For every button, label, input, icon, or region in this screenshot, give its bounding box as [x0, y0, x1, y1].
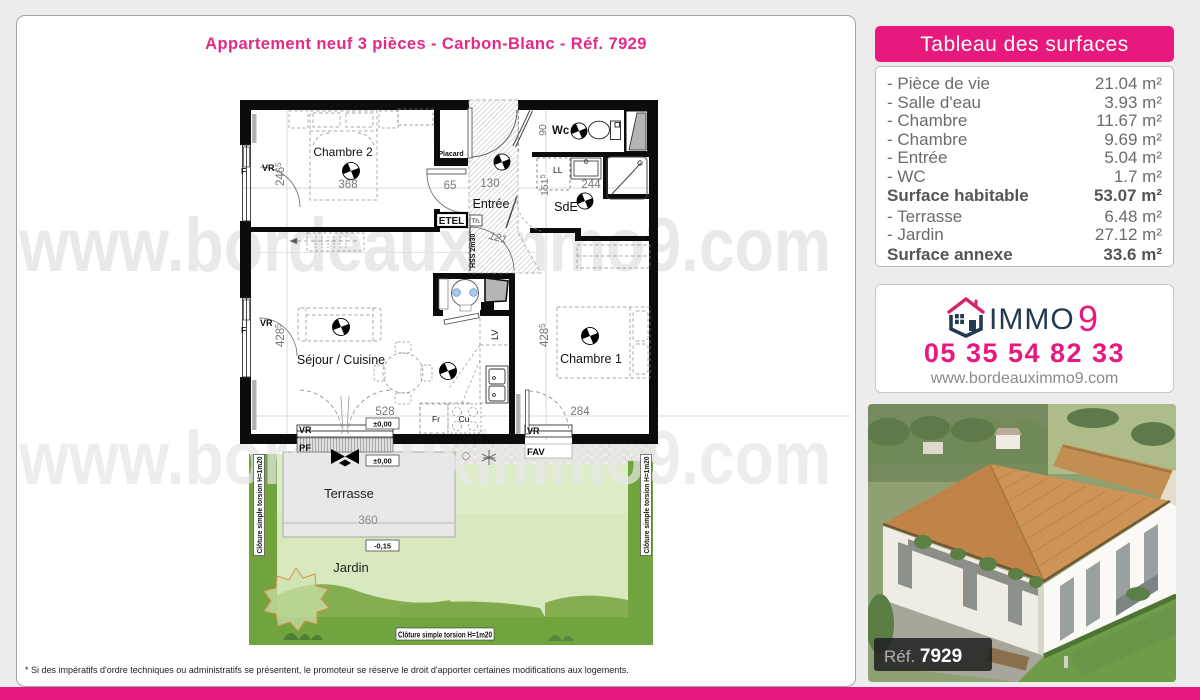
svg-text:F: F — [241, 325, 246, 335]
svg-text:368: 368 — [338, 179, 357, 191]
svg-text:Clôture simple torsion H=1m20: Clôture simple torsion H=1m20 — [255, 457, 264, 554]
svg-text:Clôture simple torsion H=1m20: Clôture simple torsion H=1m20 — [642, 457, 651, 554]
svg-text:65: 65 — [444, 180, 457, 192]
svg-text:VR: VR — [527, 426, 540, 436]
svg-text:±0,00: ±0,00 — [373, 457, 392, 466]
svg-text:VR: VR — [299, 425, 312, 435]
svg-text:90: 90 — [537, 124, 549, 136]
svg-text:-0,15: -0,15 — [374, 542, 391, 551]
svg-text:Chambre 2: Chambre 2 — [313, 145, 373, 159]
svg-text:IMMO: IMMO — [989, 303, 1075, 336]
svg-text:Th.: Th. — [471, 218, 481, 225]
svg-text:VR: VR — [260, 318, 273, 328]
svg-text:±0,00: ±0,00 — [373, 420, 392, 429]
svg-text:Clôture simple torsion H=1m20: Clôture simple torsion H=1m20 — [398, 631, 492, 640]
svg-text:ETEL: ETEL — [439, 216, 465, 227]
svg-text:Cu: Cu — [459, 414, 470, 424]
svg-text:244: 244 — [581, 179, 601, 191]
svg-text:LL: LL — [553, 165, 563, 175]
svg-text:HSS 2m30: HSS 2m30 — [470, 234, 477, 268]
svg-text:Fr: Fr — [432, 414, 440, 424]
svg-text:Wc: Wc — [552, 125, 570, 137]
svg-text:360: 360 — [358, 515, 377, 527]
svg-text:LV: LV — [490, 330, 500, 340]
svg-text:FAV: FAV — [527, 447, 545, 458]
svg-text:284: 284 — [570, 406, 590, 418]
svg-text:SdE: SdE — [554, 200, 578, 214]
svg-text:Séjour / Cuisine: Séjour / Cuisine — [297, 353, 385, 367]
svg-text:130: 130 — [480, 178, 499, 190]
svg-text:VR: VR — [262, 163, 275, 173]
svg-text:Terrasse: Terrasse — [324, 486, 374, 501]
svg-text:528: 528 — [375, 406, 394, 418]
svg-text:Entrée: Entrée — [473, 197, 510, 211]
svg-text:Jardin: Jardin — [333, 560, 368, 575]
svg-text:Réf. 7929: Réf. 7929 — [884, 646, 962, 667]
svg-text:www.bordeauximmo9.com: www.bordeauximmo9.com — [18, 203, 831, 288]
svg-text:Chambre 1: Chambre 1 — [560, 352, 622, 366]
svg-text:PF: PF — [299, 443, 311, 454]
svg-text:9: 9 — [1078, 298, 1098, 338]
svg-text:www.bordeauximmo9.com: www.bordeauximmo9.com — [18, 416, 831, 501]
svg-text:F: F — [241, 166, 246, 176]
svg-text:Placard: Placard — [438, 151, 463, 158]
